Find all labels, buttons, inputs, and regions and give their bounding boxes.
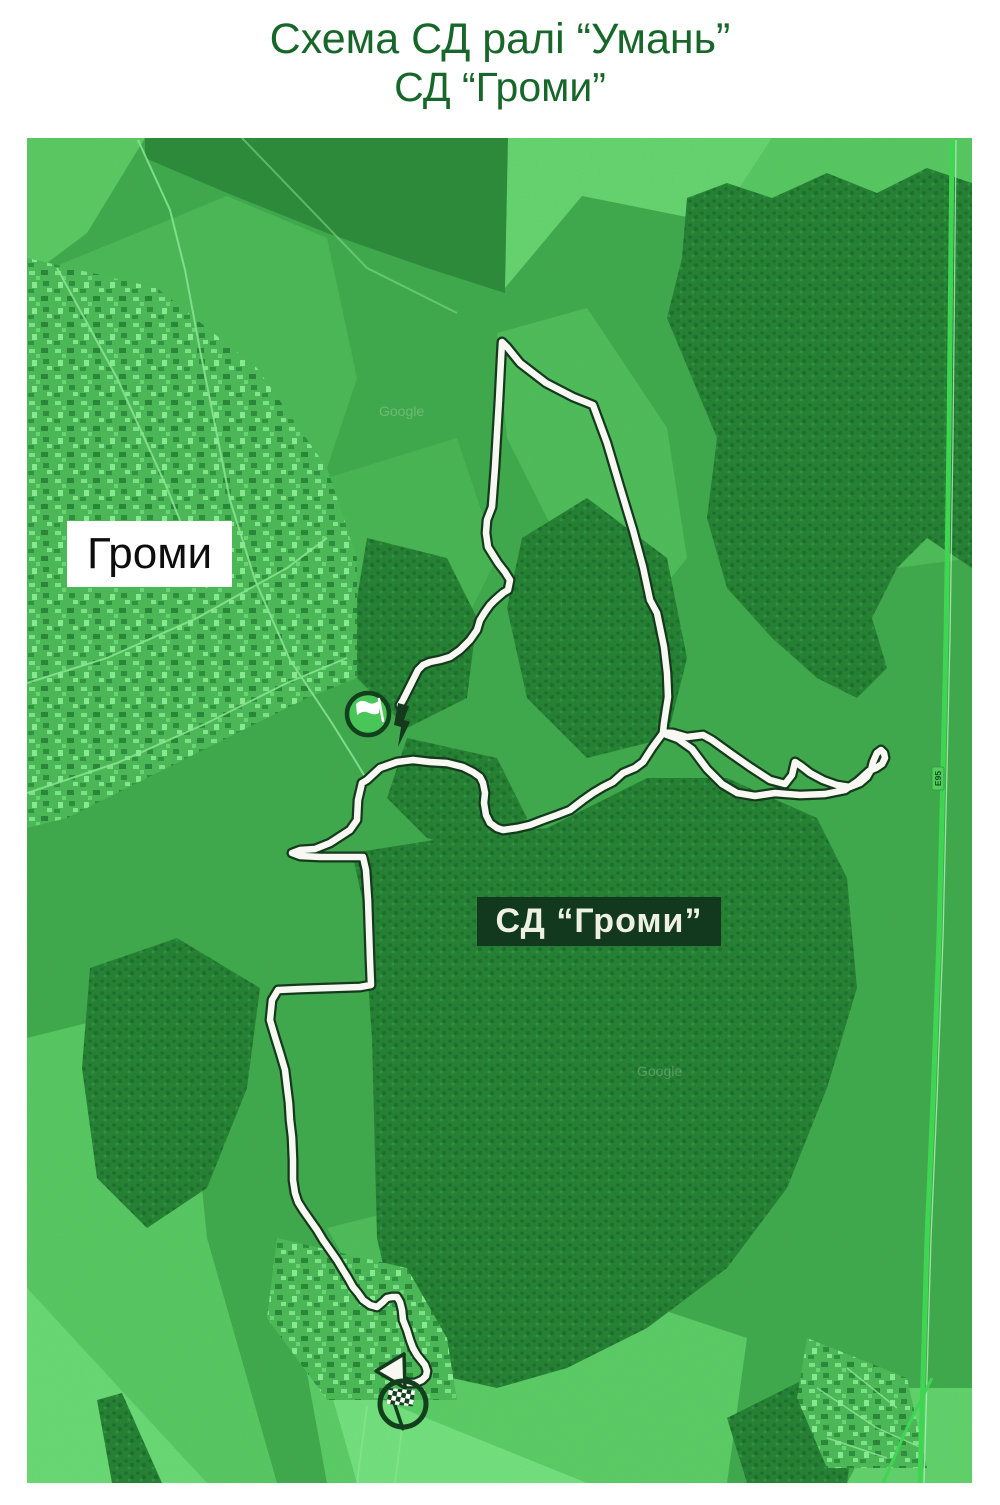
stage-label: СД “Громи” (477, 897, 721, 946)
map-image: E95 Google Google (27, 138, 972, 1483)
village-label: Громи (67, 521, 232, 587)
start-marker (347, 693, 389, 735)
page: Схема СД ралі “Умань” СД “Громи” (0, 0, 1000, 1505)
svg-text:Google: Google (637, 1063, 682, 1079)
title-line-2: СД “Громи” (0, 64, 1000, 110)
title-line-1: Схема СД ралі “Умань” (0, 14, 1000, 64)
svg-text:Google: Google (379, 403, 424, 419)
page-title: Схема СД ралі “Умань” СД “Громи” (0, 14, 1000, 110)
map-svg: E95 Google Google (27, 138, 972, 1483)
